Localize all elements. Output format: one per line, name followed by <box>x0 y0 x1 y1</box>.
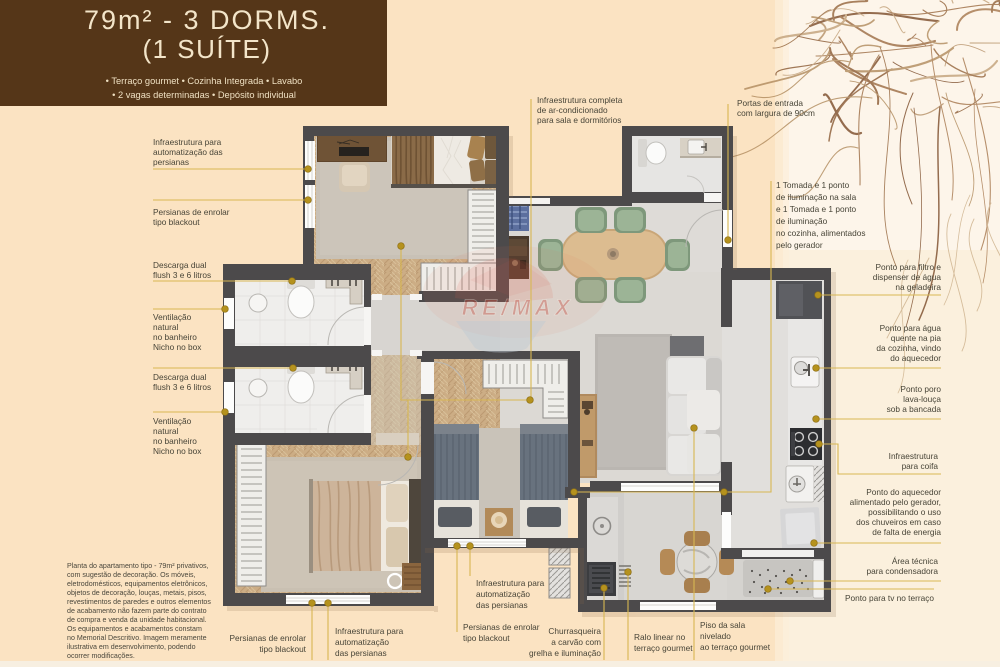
svg-text:Área técnica: Área técnica <box>892 556 939 566</box>
svg-text:e 1 Tomada e 1 ponto: e 1 Tomada e 1 ponto <box>776 204 856 214</box>
svg-text:alimentado pelo gerador,: alimentado pelo gerador, <box>850 497 941 507</box>
svg-text:automatização das: automatização das <box>153 147 223 157</box>
svg-text:de falta de energia: de falta de energia <box>872 527 941 537</box>
svg-text:da cozinha, vindo: da cozinha, vindo <box>876 343 941 353</box>
svg-text:para sala e dormitórios: para sala e dormitórios <box>537 115 621 125</box>
svg-text:Piso da sala: Piso da sala <box>700 620 746 630</box>
svg-text:ao terraço gourmet: ao terraço gourmet <box>700 642 771 652</box>
svg-text:Os equipamentos e acabamentos: Os equipamentos e acabamentos constam <box>67 625 202 633</box>
svg-text:79m² - 3 DORMS.: 79m² - 3 DORMS. <box>84 5 330 35</box>
svg-text:no cozinha, alimentados: no cozinha, alimentados <box>776 228 865 238</box>
svg-text:de acabamento não fazem parte: de acabamento não fazem parte do contrat… <box>67 607 207 615</box>
svg-text:no banheiro: no banheiro <box>153 332 197 342</box>
svg-text:automatização: automatização <box>335 637 389 647</box>
svg-text:a carvão com: a carvão com <box>551 637 601 647</box>
svg-text:Ponto para tv no terraço: Ponto para tv no terraço <box>845 593 934 603</box>
svg-text:pelo gerador: pelo gerador <box>776 240 823 250</box>
svg-text:de iluminação: de iluminação <box>776 216 828 226</box>
svg-text:dispenser de água: dispenser de água <box>873 272 942 282</box>
svg-text:de ar-condicionado: de ar-condicionado <box>537 105 608 115</box>
svg-text:Churrasqueira: Churrasqueira <box>548 626 601 636</box>
svg-text:com largura de 90cm: com largura de 90cm <box>737 108 815 118</box>
svg-text:objetos de decoração, louças,: objetos de decoração, louças, metais, pi… <box>67 589 207 597</box>
svg-text:tipo blackout: tipo blackout <box>153 217 200 227</box>
svg-text:Descarga dual: Descarga dual <box>153 260 207 270</box>
svg-text:terraço gourmet: terraço gourmet <box>634 643 693 653</box>
svg-text:de compra e venda da unidade h: de compra e venda da unidade habitaciona… <box>67 616 207 624</box>
svg-text:Persianas de enrolar: Persianas de enrolar <box>153 207 230 217</box>
svg-text:para condensadora: para condensadora <box>867 566 939 576</box>
svg-text:ocorrer modificações.: ocorrer modificações. <box>67 652 135 660</box>
svg-text:(1 SUÍTE): (1 SUÍTE) <box>142 34 271 64</box>
svg-text:Ponto para filtro e: Ponto para filtro e <box>876 262 942 272</box>
svg-text:• 2 vagas determinadas • De: • 2 vagas determinadas • Depósito indivi… <box>112 90 296 100</box>
svg-text:Portas de entrada: Portas de entrada <box>737 98 803 108</box>
svg-text:das persianas: das persianas <box>476 600 528 610</box>
svg-text:Ponto poro: Ponto poro <box>900 384 941 394</box>
svg-text:Persianas de enrolar: Persianas de enrolar <box>229 633 306 643</box>
svg-text:das persianas: das persianas <box>335 648 387 658</box>
svg-text:1 Tomada e 1 ponto: 1 Tomada e 1 ponto <box>776 180 850 190</box>
svg-text:eletrodomésticos, equipamentos: eletrodomésticos, equipamentos eletrônic… <box>67 580 207 588</box>
svg-text:na geladeira: na geladeira <box>895 282 941 292</box>
svg-text:Ventilação: Ventilação <box>153 416 192 426</box>
svg-text:Nicho no box: Nicho no box <box>153 342 202 352</box>
svg-text:dos chuveiros em caso: dos chuveiros em caso <box>856 517 941 527</box>
svg-text:automatização: automatização <box>476 589 530 599</box>
svg-text:Infraestrutura para: Infraestrutura para <box>335 626 404 636</box>
svg-text:para coifa: para coifa <box>902 461 939 471</box>
svg-text:persianas: persianas <box>153 157 189 167</box>
svg-text:Ralo linear no: Ralo linear no <box>634 632 686 642</box>
svg-text:Infraestrutura: Infraestrutura <box>889 451 939 461</box>
svg-text:sob a bancada: sob a bancada <box>887 404 942 414</box>
svg-text:tipo blackout: tipo blackout <box>463 633 510 643</box>
svg-text:• Terraço gourmet • Cozinha: • Terraço gourmet • Cozinha Integrada • … <box>106 76 303 86</box>
svg-text:lava-louça: lava-louça <box>903 394 941 404</box>
svg-text:tipo blackout: tipo blackout <box>259 644 306 654</box>
svg-text:grelha e iluminação: grelha e iluminação <box>529 648 601 658</box>
svg-text:flush 3 e 6 litros: flush 3 e 6 litros <box>153 382 211 392</box>
svg-text:do aquecedor: do aquecedor <box>890 353 941 363</box>
svg-text:Ponto para água: Ponto para água <box>880 323 942 333</box>
svg-text:Infraestrutura para: Infraestrutura para <box>153 137 222 147</box>
svg-text:RE/MAX: RE/MAX <box>462 295 575 320</box>
svg-text:quente na pia: quente na pia <box>891 333 942 343</box>
svg-text:Ventilação: Ventilação <box>153 312 192 322</box>
svg-text:flush 3 e 6 litros: flush 3 e 6 litros <box>153 270 211 280</box>
svg-text:natural: natural <box>153 426 179 436</box>
svg-text:nivelado: nivelado <box>700 631 731 641</box>
svg-text:natural: natural <box>153 322 179 332</box>
svg-text:possibilitando o uso: possibilitando o uso <box>868 507 941 517</box>
svg-text:no banheiro: no banheiro <box>153 436 197 446</box>
svg-text:no Memorial Descritivo. Imagem: no Memorial Descritivo. Imagem meramente <box>67 634 207 642</box>
svg-text:Planta do apartamento tipo - 7: Planta do apartamento tipo - 79m² privat… <box>67 562 209 570</box>
svg-text:Persianas de enrolar: Persianas de enrolar <box>463 622 540 632</box>
svg-text:de iluminação na sala: de iluminação na sala <box>776 192 857 202</box>
svg-text:Nicho no box: Nicho no box <box>153 446 202 456</box>
svg-text:Infraestrutura para: Infraestrutura para <box>476 578 545 588</box>
svg-text:com sugestão de decoração. Os: com sugestão de decoração. Os móveis, <box>67 571 196 579</box>
svg-text:Ponto do aquecedor: Ponto do aquecedor <box>866 487 941 497</box>
svg-text:revestimentos de paredes e out: revestimentos de paredes e outros elemen… <box>67 598 211 606</box>
svg-text:ilustrativa em desenvolvimento: ilustrativa em desenvolvimento, podendo <box>67 643 196 651</box>
svg-text:Infraestrutura completa: Infraestrutura completa <box>537 95 623 105</box>
svg-text:Descarga dual: Descarga dual <box>153 372 207 382</box>
